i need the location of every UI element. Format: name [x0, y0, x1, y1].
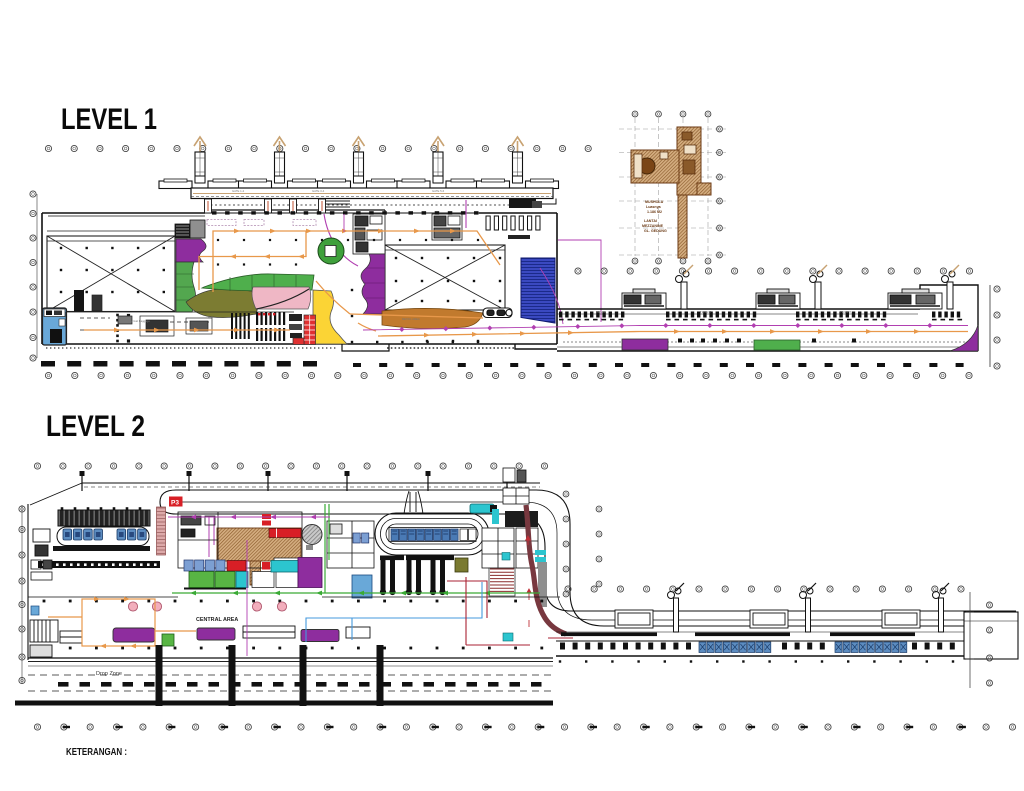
svg-text:Luasnya: Luasnya	[646, 205, 662, 209]
svg-text:TENANT: TENANT	[840, 310, 851, 314]
svg-text:MEZZANINE: MEZZANINE	[642, 224, 664, 228]
svg-text:GATE 1-2: GATE 1-2	[232, 189, 245, 193]
svg-text:Drop Zone: Drop Zone	[96, 671, 122, 677]
svg-text:MUSHOLA: MUSHOLA	[645, 200, 664, 204]
svg-text:Hall: Hall	[208, 315, 213, 319]
svg-text:TENANT: TENANT	[700, 310, 711, 314]
svg-text:GL. GEDUNG: GL. GEDUNG	[644, 229, 667, 233]
svg-text:CENTRAL AREA: CENTRAL AREA	[196, 617, 238, 623]
svg-text:GATE 3-4: GATE 3-4	[312, 189, 325, 193]
svg-text:P3: P3	[171, 500, 179, 507]
svg-text:RETAIL: RETAIL	[596, 310, 606, 314]
svg-text:Arrival Baggage: Arrival Baggage	[130, 319, 150, 323]
svg-text:KETERANGAN :: KETERANGAN :	[66, 747, 127, 758]
svg-text:RETAIL AREA: RETAIL AREA	[402, 317, 420, 321]
svg-text:LEVEL 2: LEVEL 2	[46, 410, 145, 443]
svg-text:1.186 M2: 1.186 M2	[647, 210, 662, 214]
svg-text:LANTAI: LANTAI	[644, 219, 657, 223]
svg-text:GATE 5-6: GATE 5-6	[432, 189, 445, 193]
svg-text:LEVEL 1: LEVEL 1	[61, 103, 157, 136]
